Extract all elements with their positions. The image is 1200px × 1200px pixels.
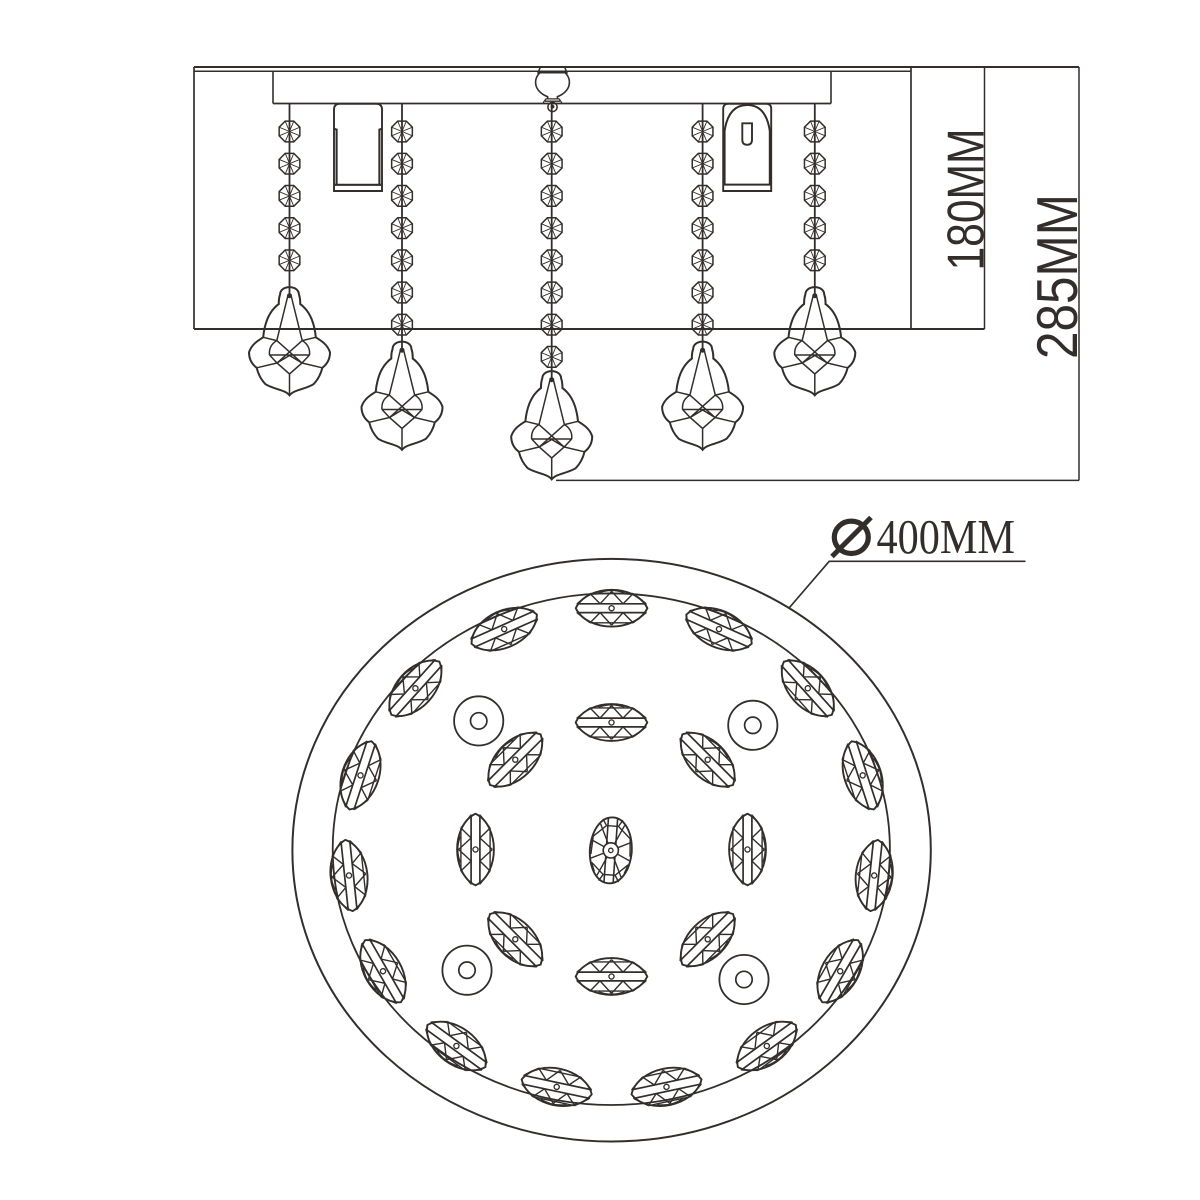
svg-text:285MM: 285MM — [1026, 194, 1090, 359]
svg-text:180MM: 180MM — [937, 129, 995, 271]
svg-text:400MM: 400MM — [877, 509, 1016, 564]
